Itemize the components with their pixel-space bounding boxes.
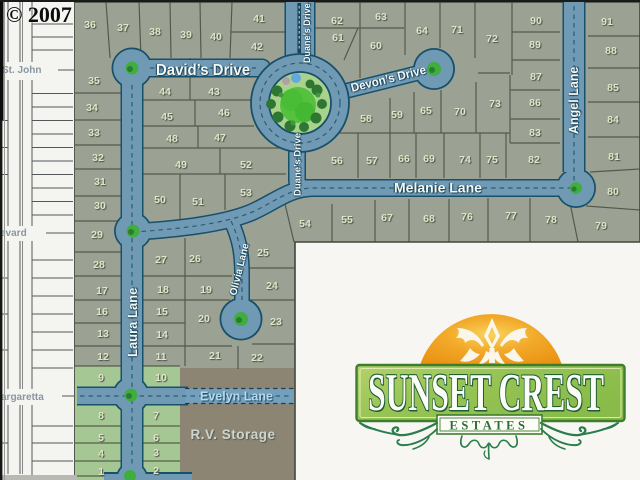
- svg-text:34: 34: [86, 102, 98, 114]
- svg-text:41: 41: [253, 13, 265, 25]
- svg-text:argaretta: argaretta: [1, 392, 44, 403]
- svg-text:30: 30: [94, 200, 106, 212]
- svg-text:Duane’s Drive: Duane’s Drive: [302, 3, 312, 63]
- svg-text:86: 86: [529, 97, 541, 109]
- svg-text:3: 3: [153, 447, 159, 459]
- svg-text:22: 22: [251, 352, 263, 364]
- svg-text:9: 9: [98, 372, 104, 384]
- svg-text:62: 62: [331, 15, 343, 27]
- svg-text:24: 24: [266, 280, 278, 292]
- svg-text:63: 63: [375, 11, 387, 23]
- svg-text:R.V. Storage: R.V. Storage: [190, 427, 275, 442]
- svg-text:ESTATES: ESTATES: [450, 419, 529, 433]
- svg-text:6: 6: [153, 432, 159, 444]
- svg-text:71: 71: [451, 24, 463, 36]
- svg-text:64: 64: [416, 25, 428, 37]
- svg-text:28: 28: [93, 259, 105, 271]
- svg-text:77: 77: [505, 210, 517, 222]
- svg-text:61: 61: [332, 32, 344, 44]
- svg-text:68: 68: [423, 213, 435, 225]
- svg-text:St. John: St. John: [2, 65, 41, 76]
- svg-text:1: 1: [98, 466, 104, 478]
- svg-text:17: 17: [96, 285, 108, 297]
- svg-text:83: 83: [529, 127, 541, 139]
- svg-text:14: 14: [156, 329, 168, 341]
- svg-text:10: 10: [155, 372, 167, 384]
- svg-text:36: 36: [84, 19, 96, 31]
- svg-text:72: 72: [486, 33, 498, 45]
- svg-text:7: 7: [153, 410, 159, 422]
- svg-text:90: 90: [530, 15, 542, 27]
- svg-text:47: 47: [214, 132, 226, 144]
- svg-text:16: 16: [96, 306, 108, 318]
- svg-text:40: 40: [210, 31, 222, 43]
- svg-text:65: 65: [420, 105, 432, 117]
- svg-text:91: 91: [601, 16, 613, 28]
- svg-text:74: 74: [459, 154, 471, 166]
- svg-text:Laura Lane: Laura Lane: [125, 288, 140, 357]
- svg-text:49: 49: [175, 159, 187, 171]
- svg-text:SUNSET CREST: SUNSET CREST: [368, 364, 604, 422]
- svg-text:21: 21: [209, 350, 221, 362]
- svg-text:82: 82: [528, 154, 540, 166]
- svg-text:56: 56: [331, 155, 343, 167]
- svg-text:52: 52: [240, 159, 252, 171]
- svg-text:37: 37: [117, 22, 129, 34]
- svg-text:45: 45: [161, 111, 173, 123]
- svg-text:60: 60: [370, 40, 382, 52]
- svg-text:32: 32: [92, 152, 104, 164]
- svg-text:18: 18: [157, 284, 169, 296]
- svg-text:© 2007: © 2007: [6, 2, 72, 27]
- svg-text:67: 67: [381, 212, 393, 224]
- svg-text:39: 39: [180, 29, 192, 41]
- svg-text:51: 51: [192, 196, 204, 208]
- svg-text:27: 27: [155, 254, 167, 266]
- svg-text:48: 48: [166, 133, 178, 145]
- svg-text:4: 4: [98, 448, 104, 460]
- svg-text:79: 79: [595, 220, 607, 232]
- svg-text:53: 53: [240, 187, 252, 199]
- svg-text:12: 12: [97, 351, 109, 363]
- svg-text:42: 42: [251, 41, 263, 53]
- svg-text:43: 43: [208, 86, 220, 98]
- svg-text:Duane’s Drive: Duane’s Drive: [293, 133, 304, 196]
- svg-text:Melanie Lane: Melanie Lane: [394, 180, 482, 196]
- svg-text:35: 35: [88, 75, 100, 87]
- svg-text:50: 50: [154, 194, 166, 206]
- svg-text:19: 19: [200, 284, 212, 296]
- svg-text:5: 5: [98, 432, 104, 444]
- svg-text:20: 20: [198, 313, 210, 325]
- svg-text:81: 81: [608, 151, 620, 163]
- svg-text:8: 8: [98, 410, 104, 422]
- svg-text:89: 89: [529, 39, 541, 51]
- svg-text:55: 55: [341, 214, 353, 226]
- svg-text:80: 80: [607, 186, 619, 198]
- svg-text:78: 78: [545, 214, 557, 226]
- svg-text:25: 25: [257, 247, 269, 259]
- svg-text:26: 26: [189, 253, 201, 265]
- svg-text:54: 54: [299, 218, 311, 230]
- svg-text:58: 58: [360, 113, 372, 125]
- svg-text:11: 11: [155, 351, 166, 363]
- svg-text:13: 13: [97, 328, 109, 340]
- svg-text:46: 46: [218, 107, 230, 119]
- svg-text:76: 76: [461, 211, 473, 223]
- svg-text:33: 33: [88, 127, 100, 139]
- svg-text:23: 23: [270, 316, 282, 328]
- svg-text:59: 59: [391, 109, 403, 121]
- svg-text:87: 87: [530, 71, 542, 83]
- svg-text:85: 85: [607, 82, 619, 94]
- svg-text:Angel Lane: Angel Lane: [567, 67, 581, 134]
- svg-text:44: 44: [159, 86, 171, 98]
- svg-text:57: 57: [366, 155, 378, 167]
- svg-text:88: 88: [605, 45, 617, 57]
- svg-text:29: 29: [91, 229, 103, 241]
- svg-text:Evelyn Lane: Evelyn Lane: [200, 390, 273, 404]
- svg-text:69: 69: [423, 153, 435, 165]
- svg-text:15: 15: [156, 306, 168, 318]
- svg-text:84: 84: [607, 114, 619, 126]
- svg-text:38: 38: [149, 26, 161, 38]
- svg-text:66: 66: [398, 153, 410, 165]
- svg-text:75: 75: [486, 154, 498, 166]
- svg-text:73: 73: [489, 98, 501, 110]
- svg-text:2: 2: [153, 465, 159, 477]
- svg-text:70: 70: [454, 106, 466, 118]
- svg-text:David’s Drive: David’s Drive: [156, 62, 250, 79]
- svg-text:31: 31: [94, 176, 106, 188]
